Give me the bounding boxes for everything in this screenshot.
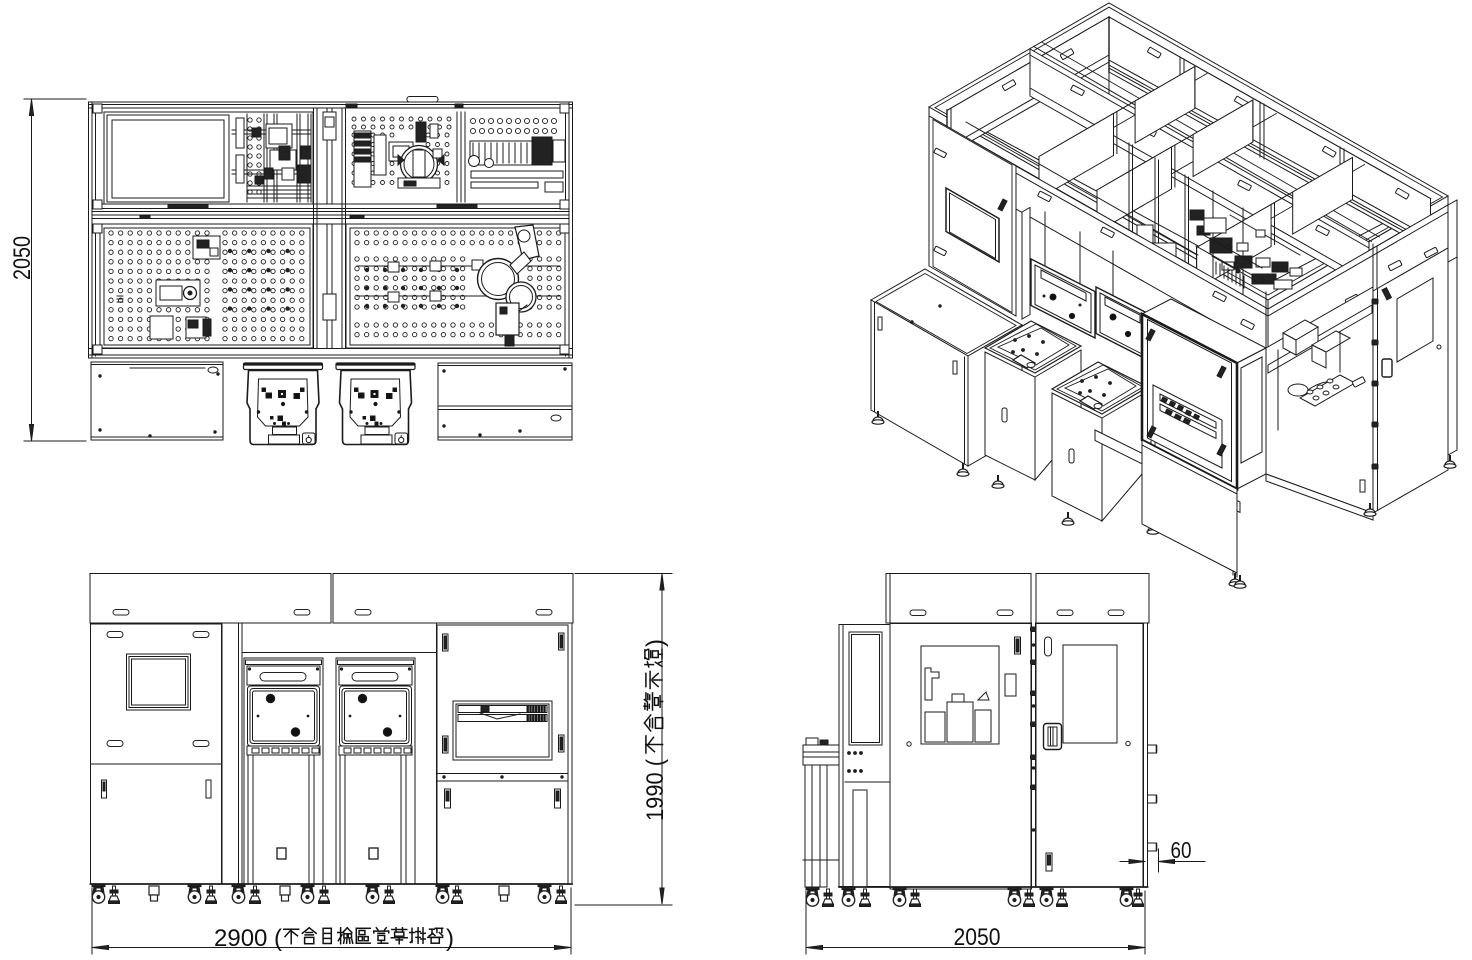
svg-text:2050: 2050 xyxy=(9,236,36,280)
svg-text:): ) xyxy=(446,925,454,952)
svg-text:2050: 2050 xyxy=(954,924,1001,951)
svg-text:1990 (: 1990 ( xyxy=(642,759,669,821)
svg-text:60: 60 xyxy=(1171,837,1192,863)
svg-text:): ) xyxy=(642,639,669,647)
svg-text:2900 (: 2900 ( xyxy=(214,925,282,952)
